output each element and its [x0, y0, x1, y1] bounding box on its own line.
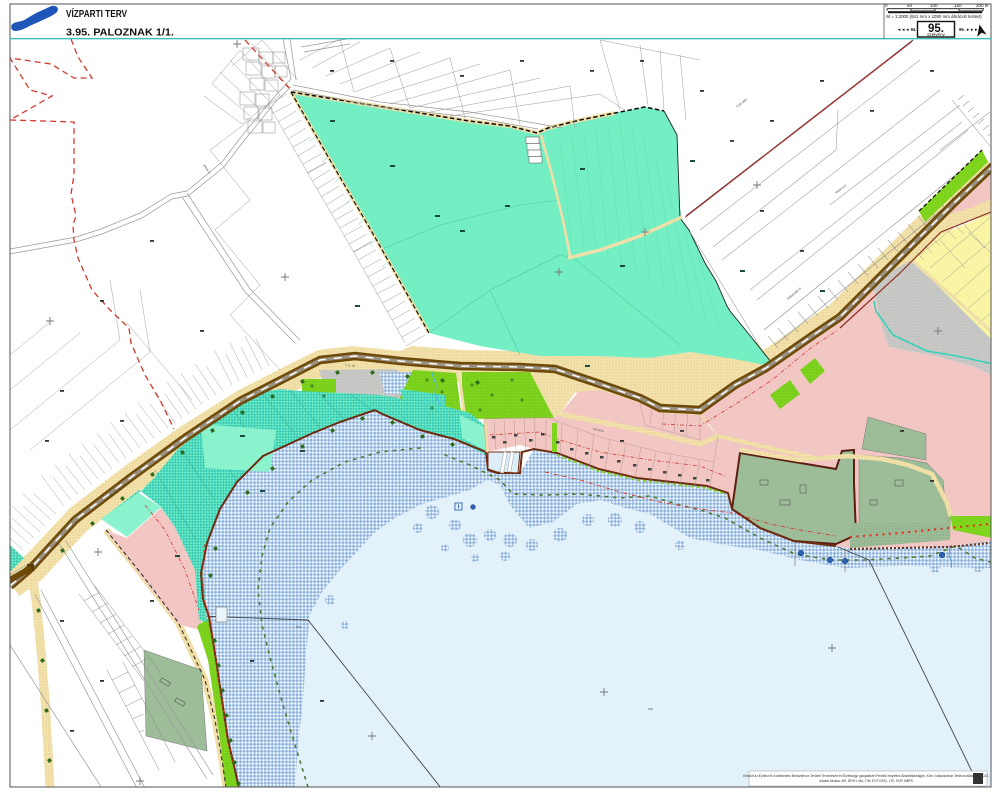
svg-text:100: 100 [930, 3, 938, 8]
svg-text:150: 150 [954, 3, 962, 8]
svg-text:3.95. PALOZNAK 1/1.: 3.95. PALOZNAK 1/1. [66, 27, 174, 39]
svg-text:szelvény: szelvény [927, 32, 946, 37]
svg-text:◄◄◄ 94.: ◄◄◄ 94. [897, 27, 916, 32]
svg-text:M = 1:2000 (841 mm x 1050 mm: M = 1:2000 (841 mm x 1050 mm ábrázolt te… [886, 14, 982, 19]
svg-text:200 m: 200 m [976, 3, 989, 8]
svg-text:Készült az Építési és Közleked: Készült az Építési és Közlekedési Minisz… [743, 773, 989, 778]
svg-text:mó: mó [296, 625, 301, 629]
svg-text:Adatok forrása: MK, BFKH, MA,: Adatok forrása: MK, BFKH, MA, TIM, EOTVI… [819, 779, 913, 783]
svg-text:VÍZPARTI TERV: VÍZPARTI TERV [66, 7, 127, 20]
svg-text:50: 50 [907, 3, 913, 8]
svg-text:96. ►►►: 96. ►►► [959, 27, 978, 32]
svg-text:mó: mó [648, 707, 653, 711]
svg-text:T. u. út: T. u. út [345, 363, 355, 368]
